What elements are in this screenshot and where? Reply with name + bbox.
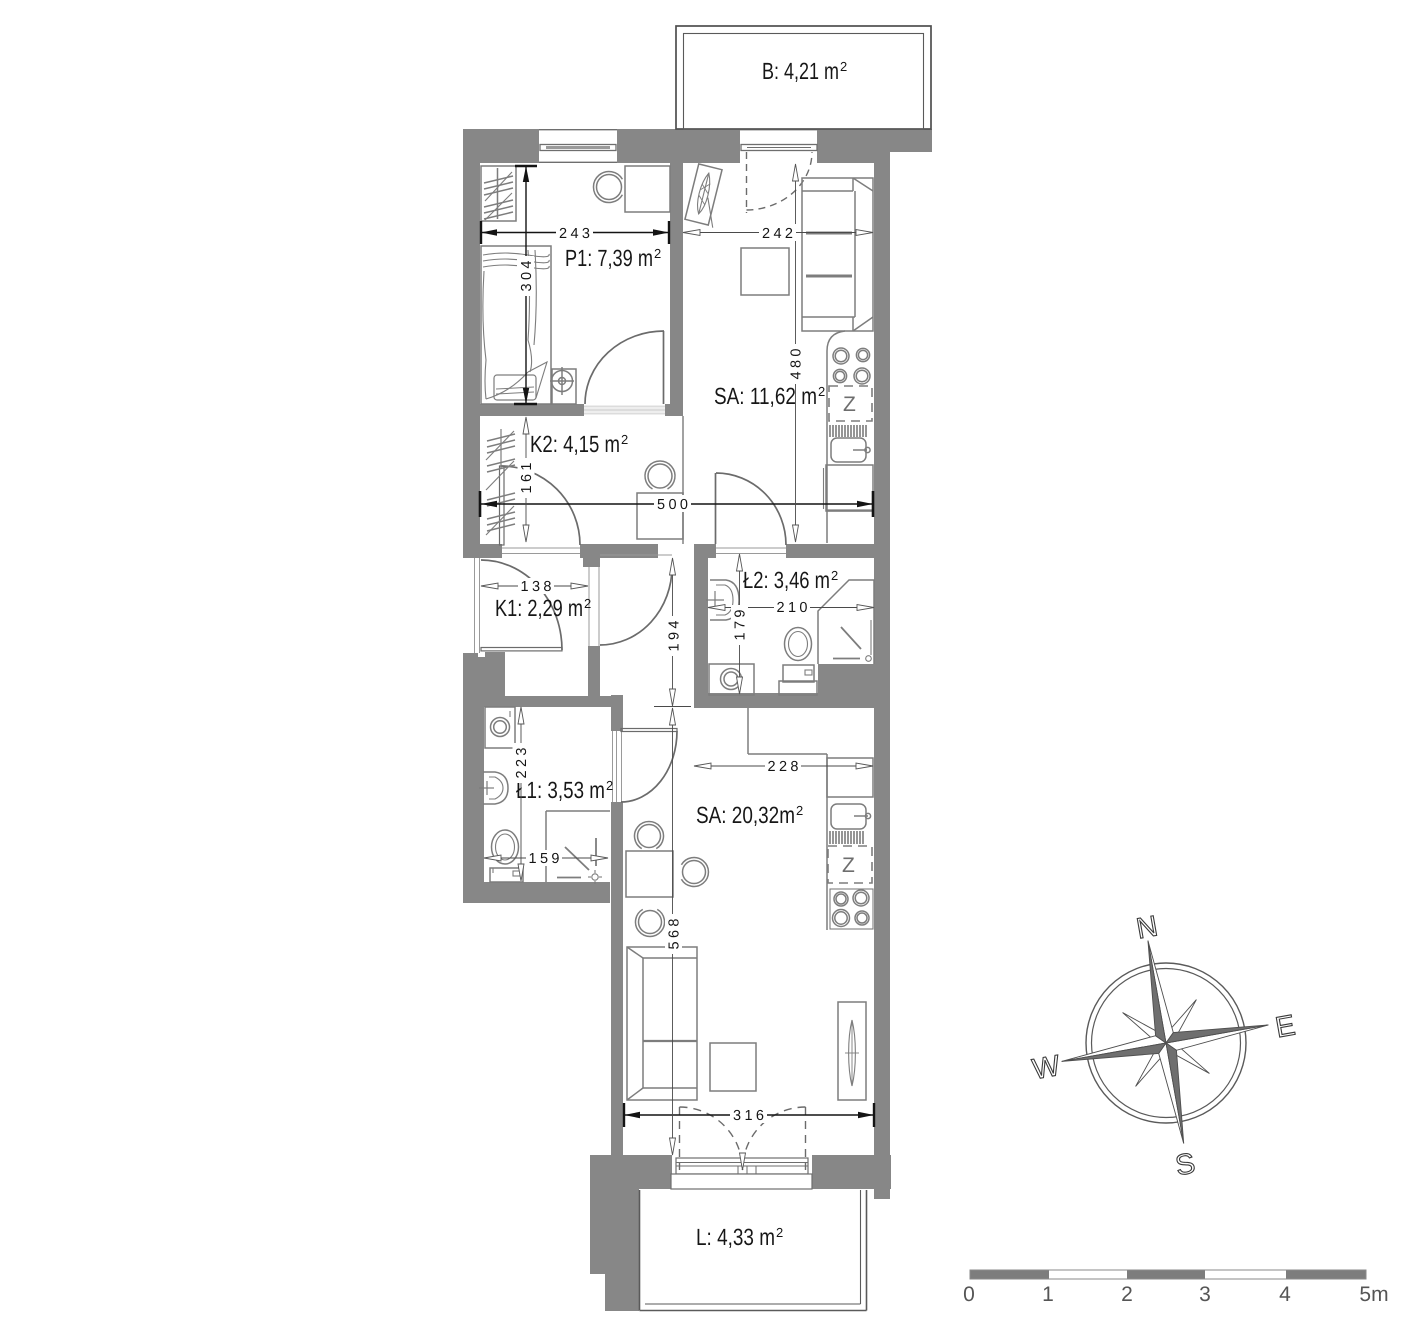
svg-text:194: 194 — [667, 621, 683, 652]
svg-text:SA: 11,62 m: SA: 11,62 m — [714, 383, 817, 409]
svg-text:138: 138 — [521, 579, 552, 595]
svg-text:5m: 5m — [1359, 1283, 1388, 1306]
svg-text:P1: 7,39 m: P1: 7,39 m — [565, 245, 653, 271]
svg-text:161: 161 — [519, 463, 535, 494]
svg-text:Z: Z — [842, 854, 855, 877]
svg-text:2: 2 — [1121, 1283, 1133, 1306]
svg-text:480: 480 — [789, 349, 805, 380]
svg-text:223: 223 — [514, 748, 530, 779]
svg-text:2: 2 — [840, 59, 847, 74]
svg-text:Z: Z — [843, 393, 856, 416]
svg-text:228: 228 — [768, 759, 799, 775]
svg-text:210: 210 — [777, 600, 808, 616]
svg-text:304: 304 — [519, 261, 535, 292]
svg-text:3: 3 — [1199, 1283, 1211, 1306]
svg-text:159: 159 — [529, 851, 560, 867]
svg-text:316: 316 — [733, 1108, 764, 1124]
svg-text:568: 568 — [667, 919, 683, 950]
svg-text:2: 2 — [831, 568, 838, 583]
svg-text:2: 2 — [584, 596, 591, 611]
svg-text:179: 179 — [733, 610, 749, 641]
svg-text:2: 2 — [654, 246, 661, 261]
svg-text:K2: 4,15 m: K2: 4,15 m — [530, 431, 620, 457]
svg-text:B: 4,21 m: B: 4,21 m — [762, 58, 839, 84]
svg-text:1: 1 — [1042, 1283, 1054, 1306]
svg-text:242: 242 — [762, 226, 793, 242]
svg-text:K1: 2,29 m: K1: 2,29 m — [495, 595, 583, 621]
svg-text:243: 243 — [559, 226, 590, 242]
svg-text:2: 2 — [621, 432, 628, 447]
svg-text:SA: 20,32m: SA: 20,32m — [696, 802, 795, 828]
svg-text:L: 4,33 m: L: 4,33 m — [696, 1224, 775, 1250]
svg-text:Ł2: 3,46 m: Ł2: 3,46 m — [743, 567, 830, 593]
svg-text:2: 2 — [796, 803, 803, 818]
svg-text:2: 2 — [776, 1225, 783, 1240]
svg-text:4: 4 — [1279, 1283, 1291, 1306]
svg-text:500: 500 — [657, 497, 688, 513]
svg-text:2: 2 — [606, 778, 613, 793]
svg-text:0: 0 — [963, 1283, 975, 1306]
svg-text:2: 2 — [818, 384, 825, 399]
